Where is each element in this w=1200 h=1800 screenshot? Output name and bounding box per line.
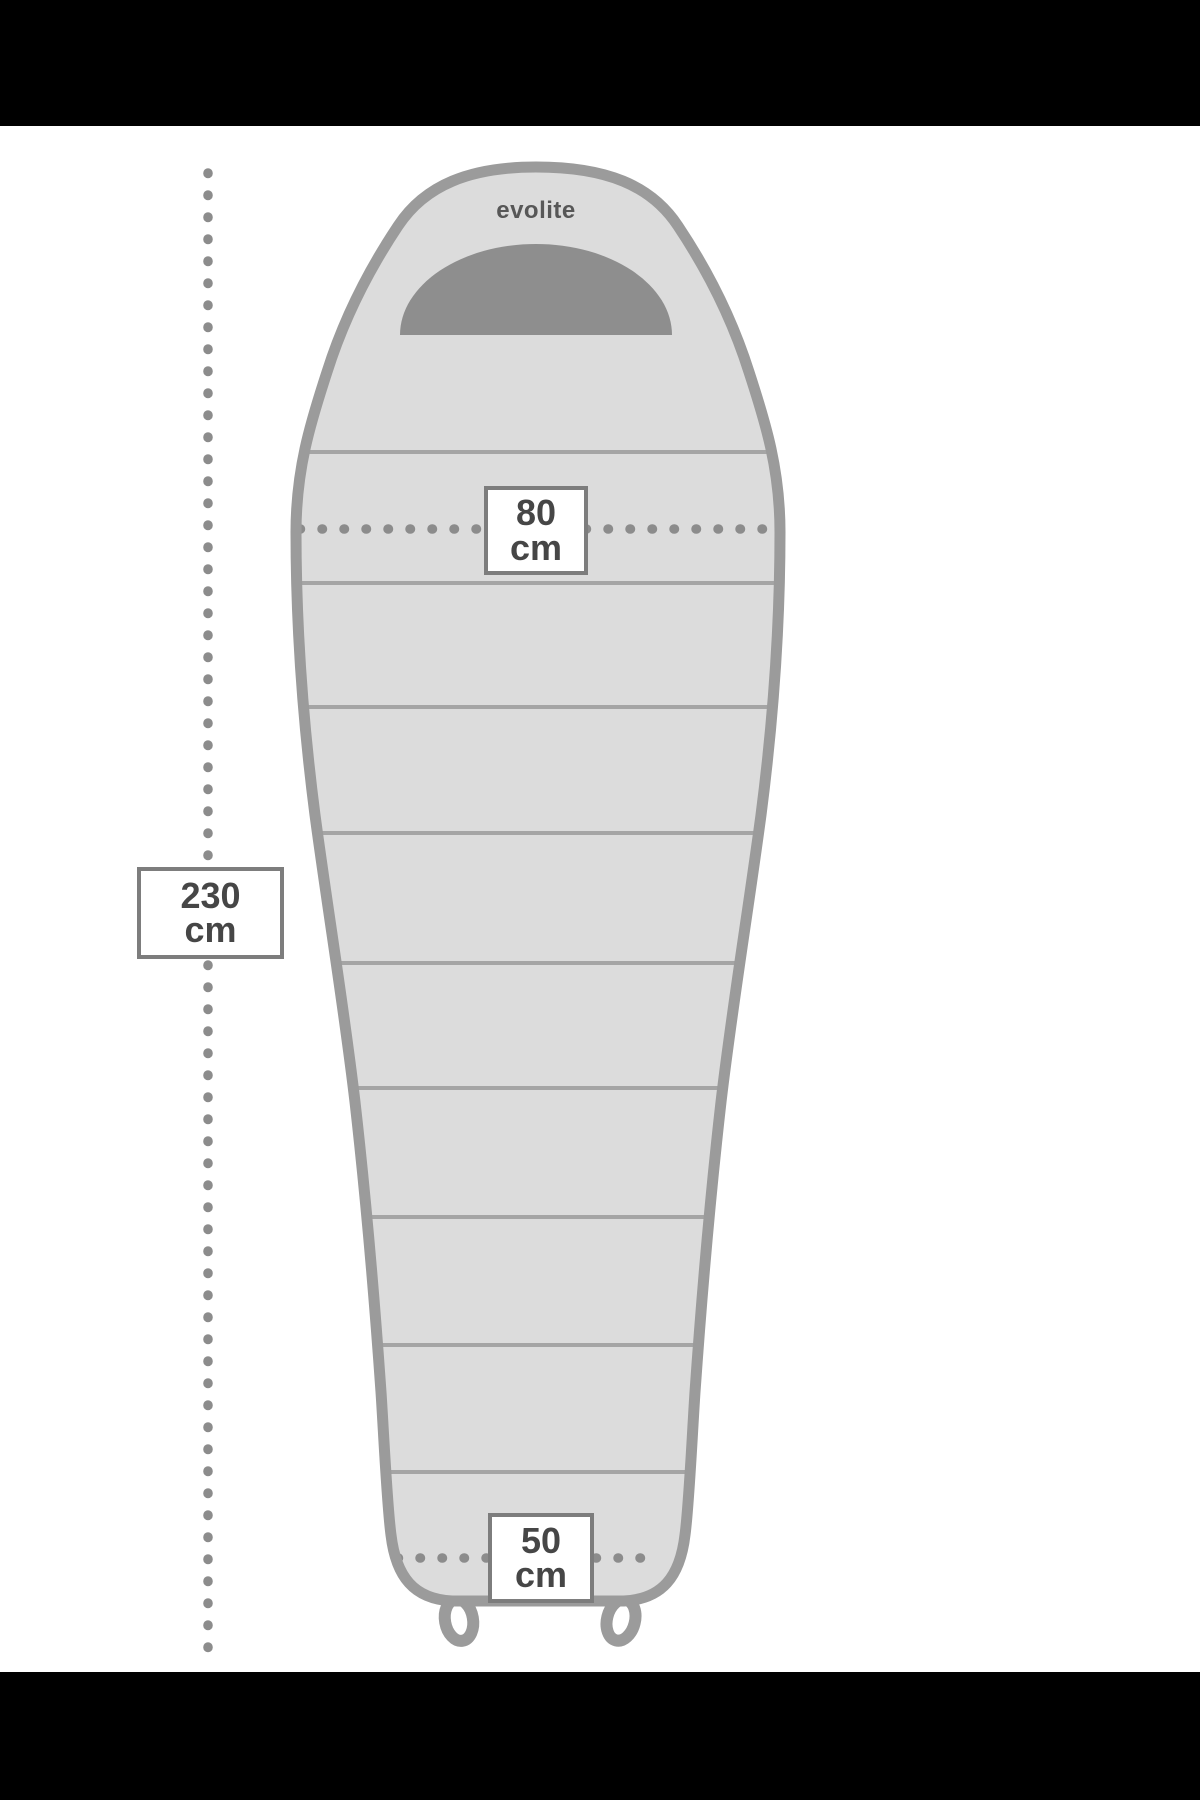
bottom-width-value: 50 <box>521 1524 561 1558</box>
bottom-width-unit: cm <box>515 1558 567 1592</box>
length-value: 230 <box>180 879 240 913</box>
top-width-dimension-label: 80 cm <box>484 486 588 575</box>
length-dimension-label: 230 cm <box>137 867 284 959</box>
brand-logo-text: evolite <box>456 197 616 225</box>
length-unit: cm <box>184 913 236 947</box>
top-width-value: 80 <box>516 496 556 530</box>
product-diagram: evolite 80 cm 230 cm 50 cm <box>0 0 1200 1800</box>
top-width-unit: cm <box>510 531 562 565</box>
bag-body <box>296 167 780 1601</box>
bottom-width-dimension-label: 50 cm <box>488 1513 594 1603</box>
